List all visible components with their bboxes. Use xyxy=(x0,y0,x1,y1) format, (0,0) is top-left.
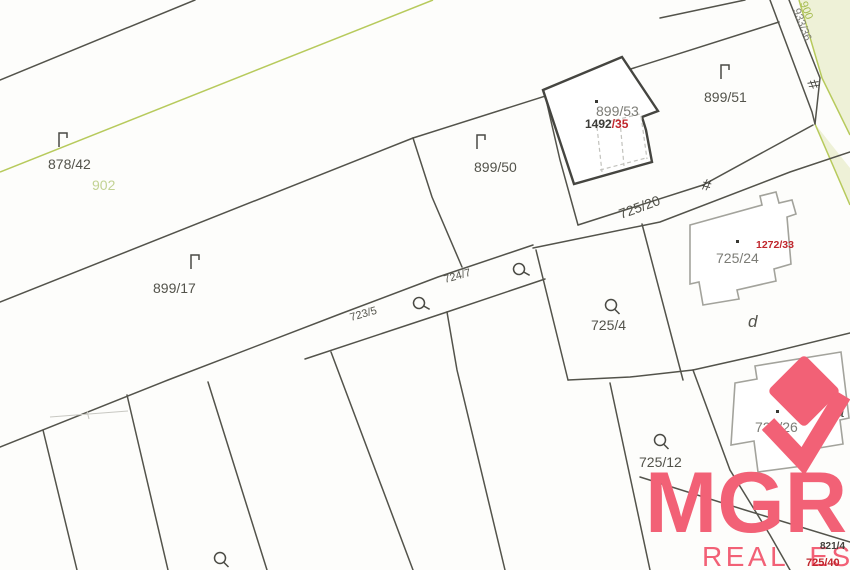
building-number-821-4: 821/4 xyxy=(820,541,845,552)
cadastral-map-view[interactable]: # # 878/42 902 899/17 899/50 899/53 899/… xyxy=(0,0,850,570)
grass-symbol-icon xyxy=(477,135,485,149)
parcel-label-899-51: 899/51 xyxy=(704,89,747,105)
parcel-label-725-24: 725/24 xyxy=(716,250,759,266)
cadastral-map[interactable]: # # 878/42 902 899/17 899/50 899/53 899/… xyxy=(0,0,850,570)
orchard-symbol-icon xyxy=(215,553,229,568)
grass-symbol-icon xyxy=(191,255,199,269)
orchard-symbol-icon xyxy=(412,295,429,313)
parcel-part-letter-d: d xyxy=(748,312,758,331)
building-point-icon xyxy=(776,410,779,413)
grass-symbol-icon xyxy=(721,65,729,79)
parcel-label-878-42: 878/42 xyxy=(48,156,91,172)
parcel-label-725-20: 725/20 xyxy=(617,192,663,222)
parcel-label-899-50: 899/50 xyxy=(474,159,517,175)
parcel-label-899-17: 899/17 xyxy=(153,280,196,296)
parcel-label-723-5: 723/5 xyxy=(349,305,379,324)
orchard-symbol-icon xyxy=(655,435,669,450)
parcel-label-724-7: 724/7 xyxy=(443,267,473,286)
building-number-725-40: 725/40 xyxy=(806,557,840,569)
fence-symbol-icon: # xyxy=(700,176,713,195)
parcel-label-902: 902 xyxy=(92,177,116,193)
parcel-label-725-4: 725/4 xyxy=(591,317,626,333)
grass-symbol-icon xyxy=(59,133,67,147)
building-number-1492-35: 1492/35 xyxy=(585,117,629,131)
building-number-1272-33: 1272/33 xyxy=(756,239,794,251)
orchard-symbol-icon xyxy=(512,261,529,279)
orchard-symbol-icon xyxy=(606,300,620,315)
brand-wordmark: MGRE xyxy=(645,455,850,551)
building-point-icon xyxy=(736,240,739,243)
fence-symbol-icon: # xyxy=(803,77,822,91)
